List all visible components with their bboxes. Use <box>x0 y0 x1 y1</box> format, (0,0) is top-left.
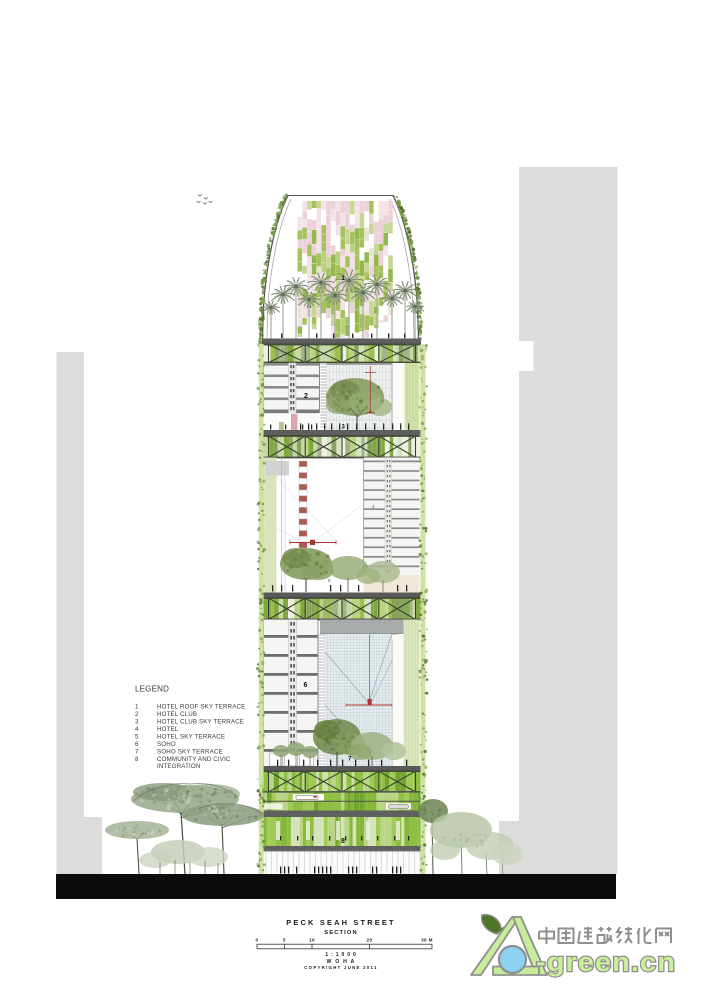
svg-text:0: 0 <box>256 938 259 943</box>
svg-text:SOHO: SOHO <box>157 741 176 748</box>
svg-text:3: 3 <box>135 719 139 726</box>
svg-text:5: 5 <box>135 733 139 740</box>
svg-text:COMMUNITY AND CIVIC: COMMUNITY AND CIVIC <box>157 756 231 763</box>
svg-text:LEGEND: LEGEND <box>135 685 169 694</box>
svg-text:6: 6 <box>135 741 139 748</box>
svg-text:8: 8 <box>341 838 345 845</box>
svg-text:7: 7 <box>135 748 139 755</box>
svg-text:COPYRIGHT JUNE 2011: COPYRIGHT JUNE 2011 <box>304 965 377 970</box>
svg-text:1: 1 <box>135 704 139 711</box>
svg-text:20: 20 <box>367 938 373 943</box>
svg-text:HOTEL ROOF SKY TERRACE: HOTEL ROOF SKY TERRACE <box>157 704 245 711</box>
svg-text:HOTEL SKY TERRACE: HOTEL SKY TERRACE <box>157 733 225 740</box>
svg-text:10: 10 <box>309 938 315 943</box>
svg-text:SOHO SKY TERRACE: SOHO SKY TERRACE <box>157 748 223 755</box>
svg-text:SECTION: SECTION <box>324 930 357 936</box>
svg-text:HOTEL CLUB SKY TERRACE: HOTEL CLUB SKY TERRACE <box>157 719 244 726</box>
svg-text:6: 6 <box>304 682 308 689</box>
svg-text:4: 4 <box>135 726 139 733</box>
svg-text:HOTEL CLUB: HOTEL CLUB <box>157 711 197 718</box>
svg-text:8: 8 <box>135 756 139 763</box>
svg-text:PECK SEAH STREET: PECK SEAH STREET <box>286 918 396 927</box>
svg-text:HOTEL: HOTEL <box>157 726 179 733</box>
svg-text:2: 2 <box>135 711 139 718</box>
svg-text:-green.cn: -green.cn <box>536 947 676 977</box>
svg-text:30 M: 30 M <box>421 938 433 943</box>
svg-text:INTEGRATION: INTEGRATION <box>157 763 200 770</box>
svg-text:2: 2 <box>304 393 308 400</box>
svg-text:1 : 1 0 0 0: 1 : 1 0 0 0 <box>325 952 356 958</box>
svg-text:5: 5 <box>283 938 286 943</box>
